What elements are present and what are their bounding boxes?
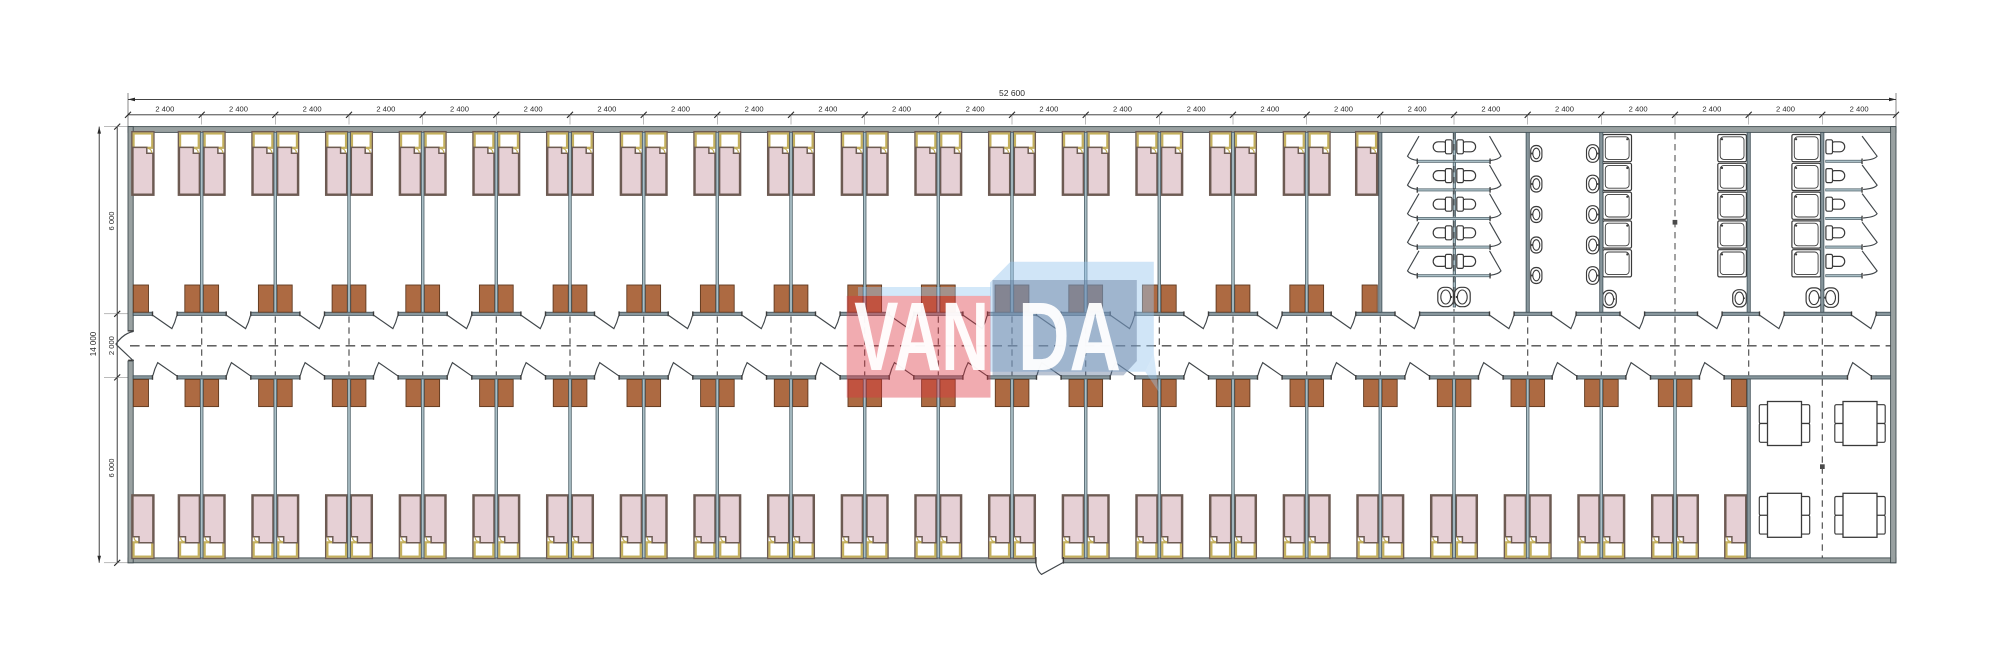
svg-text:52 600: 52 600	[999, 88, 1025, 98]
svg-text:2 400: 2 400	[450, 105, 469, 114]
svg-text:6 000: 6 000	[107, 211, 116, 230]
svg-text:2 400: 2 400	[303, 105, 322, 114]
svg-text:2 400: 2 400	[818, 105, 837, 114]
svg-text:2 400: 2 400	[966, 105, 985, 114]
svg-text:2 400: 2 400	[671, 105, 690, 114]
svg-text:2 400: 2 400	[524, 105, 543, 114]
svg-text:2 400: 2 400	[1187, 105, 1206, 114]
svg-text:2 400: 2 400	[1555, 105, 1574, 114]
svg-text:2 400: 2 400	[1702, 105, 1721, 114]
svg-text:6 000: 6 000	[107, 458, 116, 477]
svg-text:2 400: 2 400	[1113, 105, 1132, 114]
svg-text:2 400: 2 400	[892, 105, 911, 114]
svg-text:2 400: 2 400	[1776, 105, 1795, 114]
svg-text:14 000: 14 000	[89, 331, 98, 356]
svg-text:VAN: VAN	[854, 282, 989, 391]
svg-text:2 400: 2 400	[1850, 105, 1869, 114]
svg-text:2 400: 2 400	[1039, 105, 1058, 114]
svg-text:2 400: 2 400	[745, 105, 764, 114]
svg-text:2 400: 2 400	[1408, 105, 1427, 114]
svg-text:DA: DA	[1018, 283, 1121, 391]
svg-text:2 400: 2 400	[1334, 105, 1353, 114]
svg-text:2 400: 2 400	[1481, 105, 1500, 114]
svg-text:2 400: 2 400	[155, 105, 174, 114]
svg-text:2 400: 2 400	[376, 105, 395, 114]
svg-text:2 000: 2 000	[107, 336, 116, 355]
svg-text:2 400: 2 400	[1260, 105, 1279, 114]
svg-text:2 400: 2 400	[597, 105, 616, 114]
svg-text:2 400: 2 400	[229, 105, 248, 114]
svg-text:2 400: 2 400	[1629, 105, 1648, 114]
